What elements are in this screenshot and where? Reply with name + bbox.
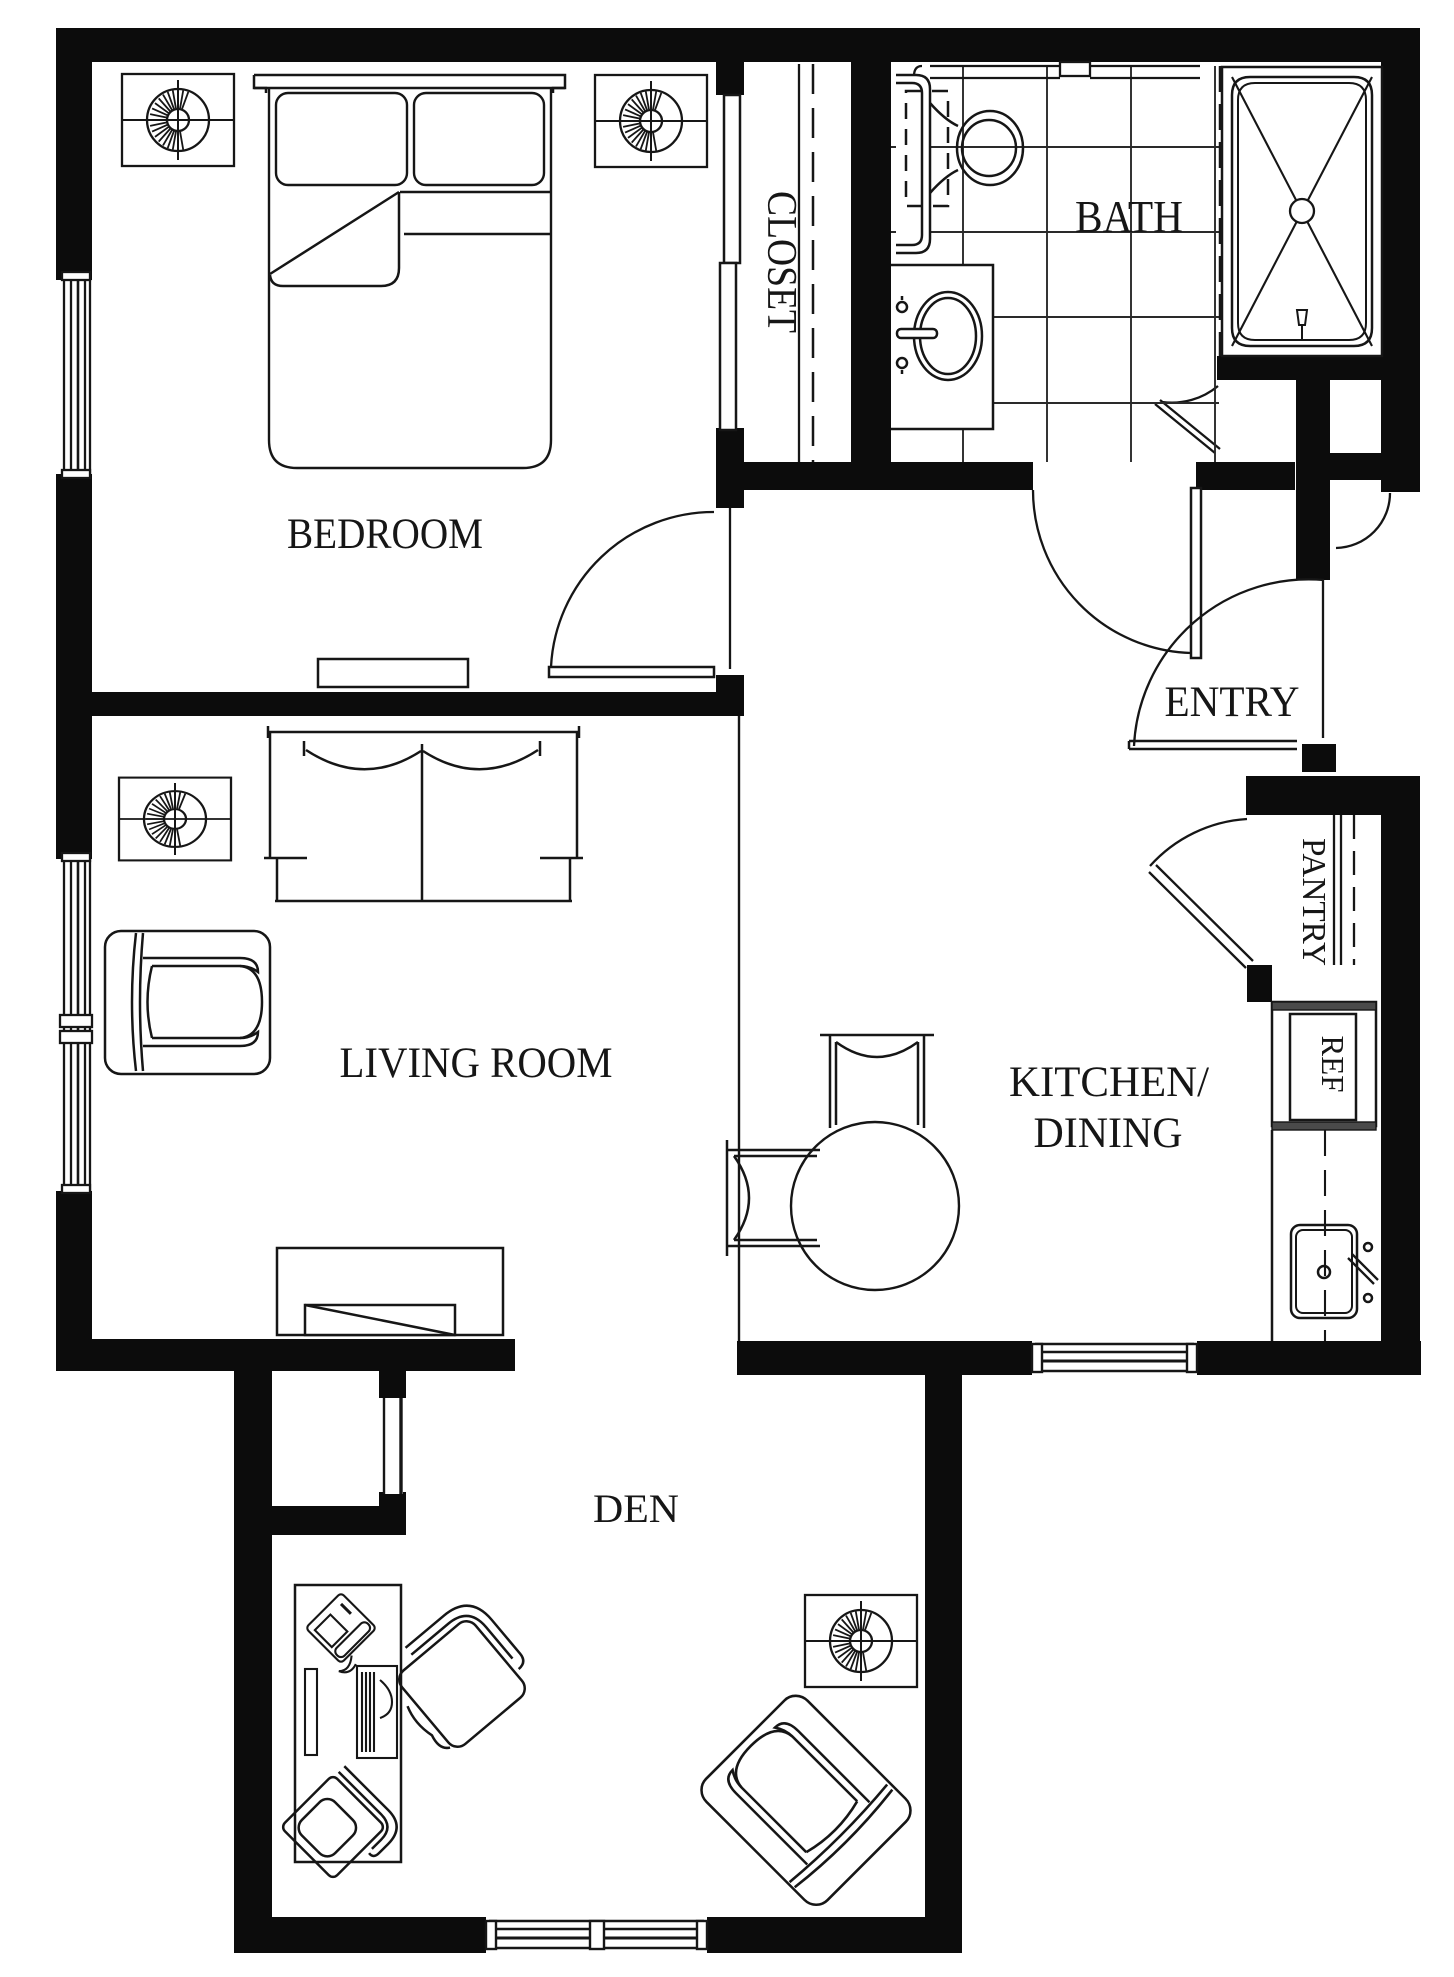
svg-text:CLOSET: CLOSET [758,191,804,333]
svg-text:DEN: DEN [593,1486,679,1531]
svg-text:PANTRY: PANTRY [1295,838,1332,966]
svg-text:KITCHEN/: KITCHEN/ [1009,1059,1209,1106]
svg-text:REF: REF [1315,1036,1351,1093]
svg-text:DINING: DINING [1034,1110,1183,1157]
svg-text:LIVING ROOM: LIVING ROOM [340,1040,613,1087]
svg-text:ENTRY: ENTRY [1165,679,1300,726]
svg-text:BEDROOM: BEDROOM [287,511,483,558]
svg-text:BATH: BATH [1075,192,1183,242]
